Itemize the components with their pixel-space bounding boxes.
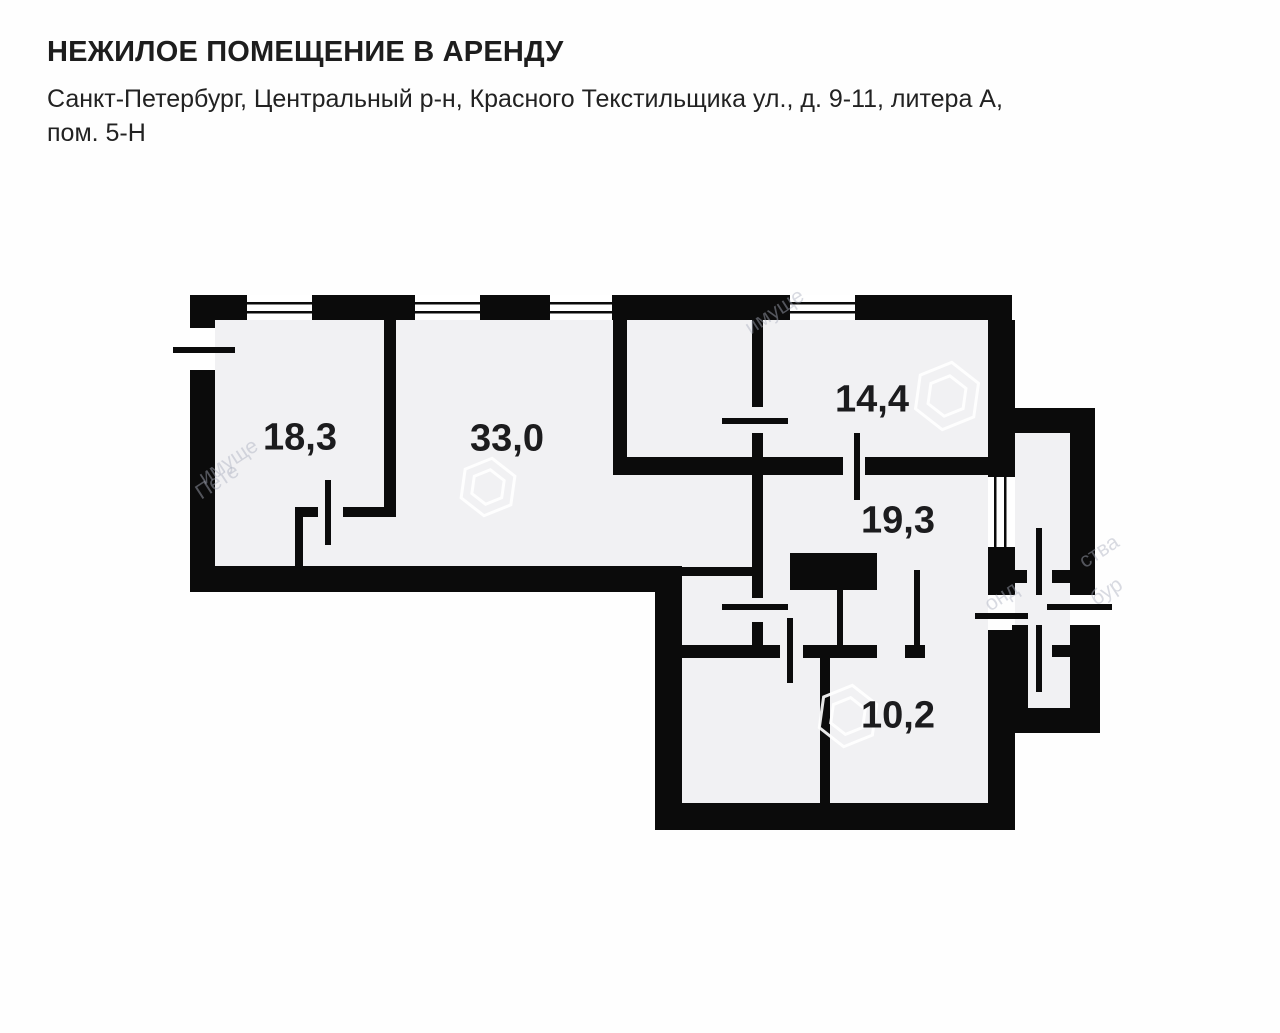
wall-bottom-main: [190, 566, 682, 592]
partition-14-19: [865, 457, 988, 475]
wall-left-lower-wing: [655, 590, 682, 830]
window: [790, 295, 855, 320]
vestibule-wall-bottom: [1008, 708, 1100, 733]
floor-plan-drawing: [0, 0, 1280, 1033]
door-jamb: [1012, 570, 1027, 583]
partition-mid-14: [752, 320, 763, 407]
door-leaf: [325, 480, 331, 545]
door-leaf-exterior: [1047, 604, 1112, 610]
door-leaf: [1036, 528, 1042, 595]
door-leaf: [1036, 625, 1042, 692]
screenshot-root: { "header": { "title": "НЕЖИЛОЕ ПОМЕЩЕНИ…: [0, 0, 1280, 1033]
partition-lower-rooms: [680, 645, 780, 658]
door-leaf: [722, 418, 788, 424]
wall-right-upper: [988, 320, 1015, 477]
door-jamb: [1052, 645, 1070, 657]
door-leaf: [787, 618, 793, 683]
partition-14-19: [613, 457, 843, 475]
door-leaf: [914, 570, 920, 647]
floor-plan: имущеимущеПетествабуронд 18,333,014,419,…: [0, 0, 1280, 1033]
door-leaf: [722, 604, 788, 610]
partition-corridor: [680, 567, 752, 576]
door-leaf: [837, 590, 843, 650]
wall-bottom-lower-wing: [655, 803, 1015, 830]
partition-18-33: [384, 320, 396, 517]
door-jamb: [1052, 570, 1070, 583]
door-jamb: [343, 507, 396, 517]
wall-right-mid: [988, 547, 1015, 595]
window: [550, 295, 612, 320]
door-jamb: [295, 507, 318, 517]
door-leaf: [173, 347, 235, 353]
vestibule-wall-top: [1012, 408, 1095, 433]
door-leaf: [975, 613, 1028, 619]
window-right-wall: [988, 477, 1015, 547]
window: [247, 295, 312, 320]
vestibule-wall-right-upper: [1070, 433, 1095, 595]
shaft-block: [790, 553, 877, 590]
door-leaf: [854, 433, 860, 500]
vestibule-wall-inner: [1012, 625, 1028, 708]
window: [415, 295, 480, 320]
partition-10-2: [820, 655, 830, 803]
partition-33-mid: [613, 320, 627, 475]
room-interiors: [215, 320, 1070, 803]
door-jamb: [295, 517, 303, 567]
